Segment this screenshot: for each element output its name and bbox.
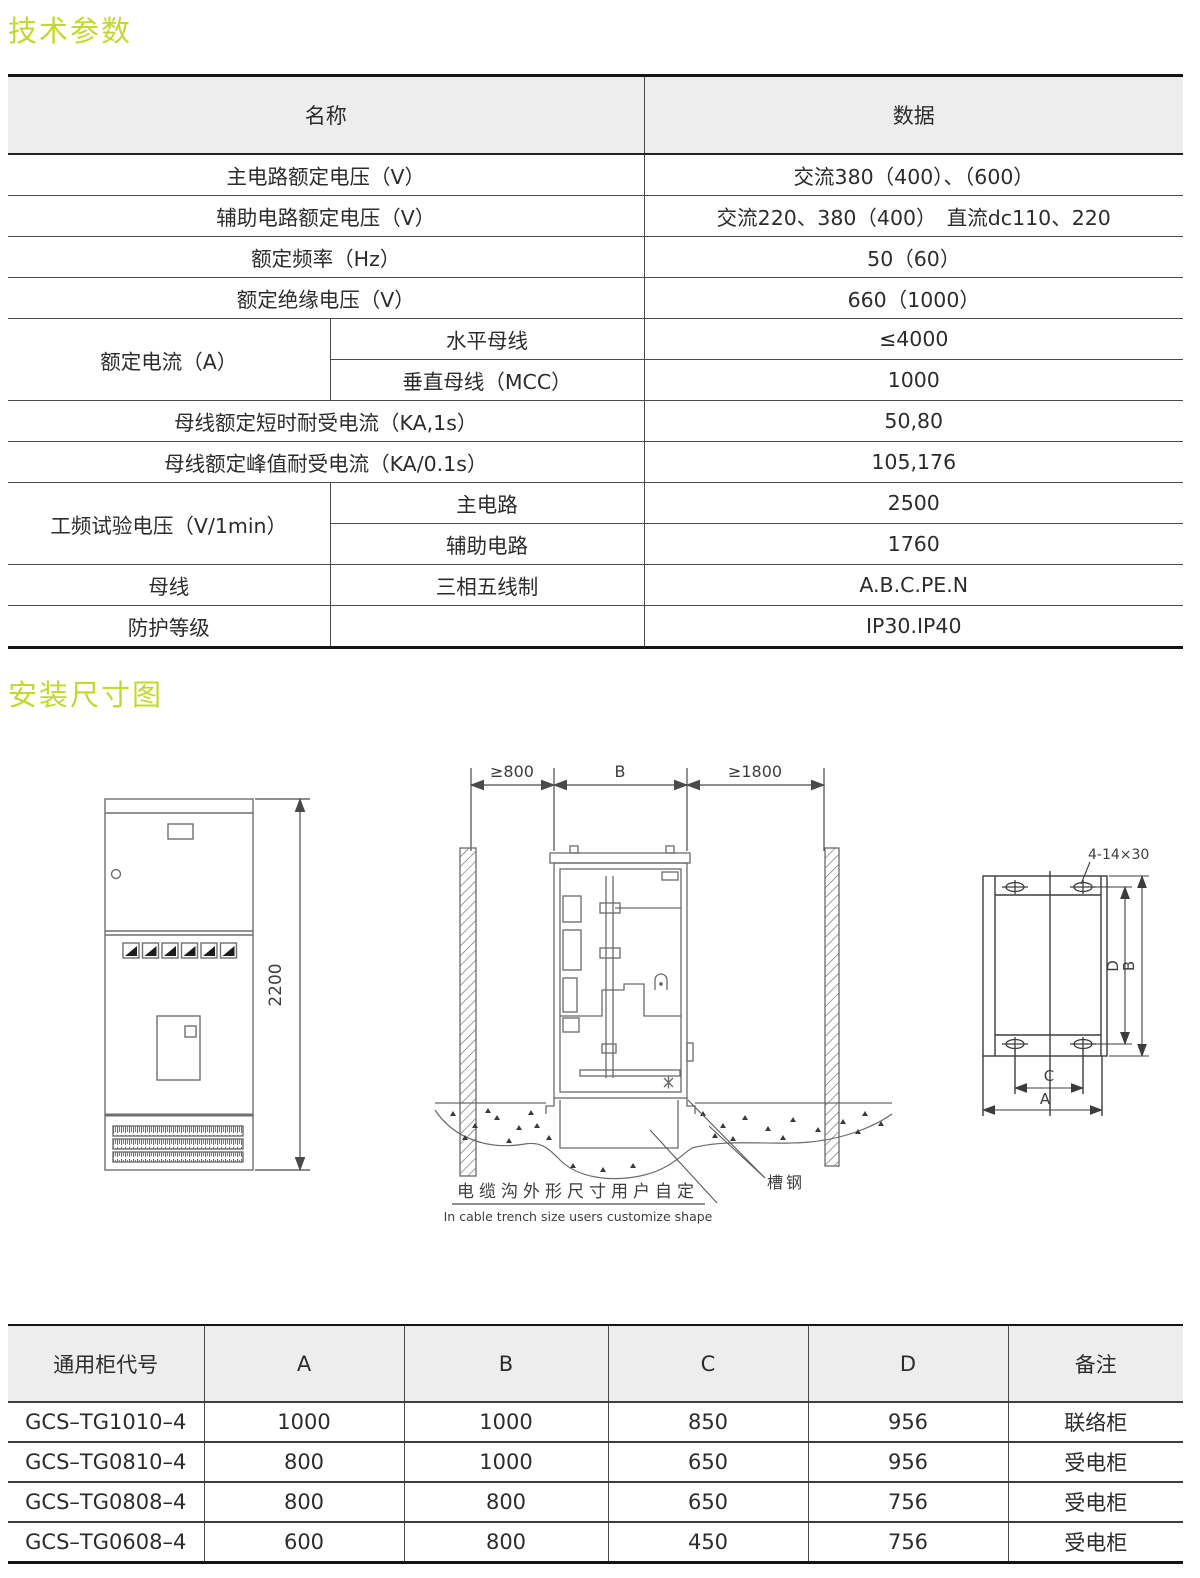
- table-row: 防护等级 IP30.IP40: [8, 606, 1183, 648]
- remark-cell: 受电柜: [1008, 1482, 1183, 1522]
- door-handle: [687, 1043, 693, 1061]
- trench-caption-en: In cable trench size users customize sha…: [444, 1209, 713, 1224]
- table-row: 辅助电路额定电压（V） 交流220、380（400） 直流dc110、220: [8, 196, 1183, 237]
- spec-value-cell: 105,176: [644, 442, 1183, 483]
- cabinet-side-view: [546, 846, 695, 1148]
- slot-holes: [1002, 880, 1096, 1051]
- model-cell: GCS–TG0608–4: [8, 1522, 204, 1563]
- table-row: GCS–TG0810–4 800 1000 650 956 受电柜: [8, 1442, 1183, 1482]
- dim-header-a: A: [204, 1325, 404, 1402]
- spec-value-cell: 1760: [644, 524, 1183, 565]
- table-row: GCS–TG0808–4 800 800 650 756 受电柜: [8, 1482, 1183, 1522]
- remark-cell: 受电柜: [1008, 1522, 1183, 1563]
- model-cell: GCS–TG0810–4: [8, 1442, 204, 1482]
- spec-value-cell: 交流380（400）、（600）: [644, 154, 1183, 196]
- cabinet-front-outline: [105, 799, 253, 1170]
- dim-a-cell: 600: [204, 1522, 404, 1563]
- spec-value-cell: 交流220、380（400） 直流dc110、220: [644, 196, 1183, 237]
- spec-sub-cell: 垂直母线（MCC）: [330, 360, 644, 401]
- dim-b-cell: 1000: [404, 1402, 608, 1442]
- dim-a-label: A: [1040, 1090, 1051, 1108]
- spec-sub-cell: 主电路: [330, 483, 644, 524]
- spec-header-row: 名称 数据: [8, 76, 1183, 155]
- trench-section-diagram: ≥800 B ≥1800: [430, 748, 900, 1230]
- spec-name-cell: 母线额定峰值耐受电流（KA/0.1s）: [8, 442, 644, 483]
- right-clearance-label: ≥1800: [728, 762, 782, 781]
- dim-header-remark: 备注: [1008, 1325, 1183, 1402]
- remark-cell: 联络柜: [1008, 1402, 1183, 1442]
- dim-d-cell: 756: [808, 1522, 1008, 1563]
- nameplate: [168, 824, 193, 839]
- spec-group-cell: 额定电流（A）: [8, 319, 330, 401]
- dim-c-cell: 650: [608, 1482, 808, 1522]
- cabinet-width-label: B: [615, 762, 626, 781]
- spec-value-cell: 2500: [644, 483, 1183, 524]
- front-view-diagram: 2200: [88, 786, 328, 1188]
- spec-name-cell: 额定频率（Hz）: [8, 237, 644, 278]
- dim-a-cell: 800: [204, 1442, 404, 1482]
- dim-header-model: 通用柜代号: [8, 1325, 204, 1402]
- dim-a-cell: 1000: [204, 1402, 404, 1442]
- spec-value-cell: IP30.IP40: [644, 606, 1183, 648]
- spec-group-cell: 工频试验电压（V/1min）: [8, 483, 330, 565]
- spec-name-cell: 防护等级: [8, 606, 330, 648]
- spec-sub-cell: 辅助电路: [330, 524, 644, 565]
- dim-header-row: 通用柜代号 A B C D 备注: [8, 1325, 1183, 1402]
- dim-d-cell: 956: [808, 1442, 1008, 1482]
- spec-sub-cell: [330, 606, 644, 648]
- dim-c-cell: 850: [608, 1402, 808, 1442]
- concrete-walls: [460, 848, 839, 1176]
- page: 技术参数 名称 数据 主电路额定电压（V） 交流380（400）、（600） 辅…: [0, 0, 1200, 1578]
- spec-value-cell: ≤4000: [644, 319, 1183, 360]
- spec-header-data: 数据: [644, 76, 1183, 155]
- dim-header-b: B: [404, 1325, 608, 1402]
- dim-b-cell: 800: [404, 1482, 608, 1522]
- spec-value-cell: 1000: [644, 360, 1183, 401]
- spec-name-cell: 主电路额定电压（V）: [8, 154, 644, 196]
- remark-cell: 受电柜: [1008, 1442, 1183, 1482]
- section-title-install-dims: 安装尺寸图: [8, 672, 163, 714]
- spec-table: 名称 数据 主电路额定电压（V） 交流380（400）、（600） 辅助电路额定…: [8, 74, 1183, 649]
- table-row: GCS–TG1010–4 1000 1000 850 956 联络柜: [8, 1402, 1183, 1442]
- section-title-tech-params: 技术参数: [8, 8, 132, 50]
- spec-sub-cell: 三相五线制: [330, 565, 644, 606]
- plan-dimensions: [983, 862, 1149, 1110]
- dim-c-cell: 650: [608, 1442, 808, 1482]
- front-height-dim-label: 2200: [266, 963, 286, 1006]
- dim-b-cell: 800: [404, 1522, 608, 1563]
- spec-value-cell: A.B.C.PE.N: [644, 565, 1183, 606]
- table-row: 母线额定短时耐受电流（KA,1s） 50,80: [8, 401, 1183, 442]
- dim-c-cell: 450: [608, 1522, 808, 1563]
- left-clearance-label: ≥800: [490, 762, 534, 781]
- door-lock: [112, 870, 121, 879]
- fan-symbol: [664, 1076, 673, 1089]
- table-row: 工频试验电压（V/1min） 主电路 2500: [8, 483, 1183, 524]
- spec-name-cell: 母线: [8, 565, 330, 606]
- dimension-table: 通用柜代号 A B C D 备注 GCS–TG1010–4 1000 1000 …: [8, 1324, 1183, 1564]
- dim-b-cell: 1000: [404, 1442, 608, 1482]
- spec-value-cell: 660（1000）: [644, 278, 1183, 319]
- indicator-lamps: [123, 943, 237, 958]
- model-cell: GCS–TG0808–4: [8, 1482, 204, 1522]
- table-row: 母线 三相五线制 A.B.C.PE.N: [8, 565, 1183, 606]
- spec-name-cell: 额定绝缘电压（V）: [8, 278, 644, 319]
- spec-sub-cell: 水平母线: [330, 319, 644, 360]
- table-row: 额定电流（A） 水平母线 ≤4000: [8, 319, 1183, 360]
- model-cell: GCS–TG1010–4: [8, 1402, 204, 1442]
- dim-c-label: C: [1044, 1067, 1054, 1085]
- vent-grilles: [113, 1126, 243, 1162]
- spec-name-cell: 辅助电路额定电压（V）: [8, 196, 644, 237]
- spec-header-name: 名称: [8, 76, 644, 155]
- dim-d-cell: 956: [808, 1402, 1008, 1442]
- table-row: 额定频率（Hz） 50（60）: [8, 237, 1183, 278]
- table-row: 母线额定峰值耐受电流（KA/0.1s） 105,176: [8, 442, 1183, 483]
- dim-b-label: B: [1120, 961, 1138, 971]
- dim-d-cell: 756: [808, 1482, 1008, 1522]
- spec-value-cell: 50,80: [644, 401, 1183, 442]
- dim-header-d: D: [808, 1325, 1008, 1402]
- table-row: GCS–TG0608–4 600 800 450 756 受电柜: [8, 1522, 1183, 1563]
- mounting-plan-diagram: 4-14×30 D B C A: [950, 828, 1200, 1128]
- mounting-holes-label: 4-14×30: [1088, 847, 1149, 863]
- trench-caption-cn: 电缆沟外形尺寸用户自定: [457, 1182, 699, 1202]
- dim-header-c: C: [608, 1325, 808, 1402]
- channel-steel-label: 槽钢: [767, 1173, 805, 1192]
- dim-a-cell: 800: [204, 1482, 404, 1522]
- spec-name-cell: 母线额定短时耐受电流（KA,1s）: [8, 401, 644, 442]
- ground: [435, 1103, 892, 1179]
- table-row: 主电路额定电压（V） 交流380（400）、（600）: [8, 154, 1183, 196]
- spec-value-cell: 50（60）: [644, 237, 1183, 278]
- table-row: 额定绝缘电压（V） 660（1000）: [8, 278, 1183, 319]
